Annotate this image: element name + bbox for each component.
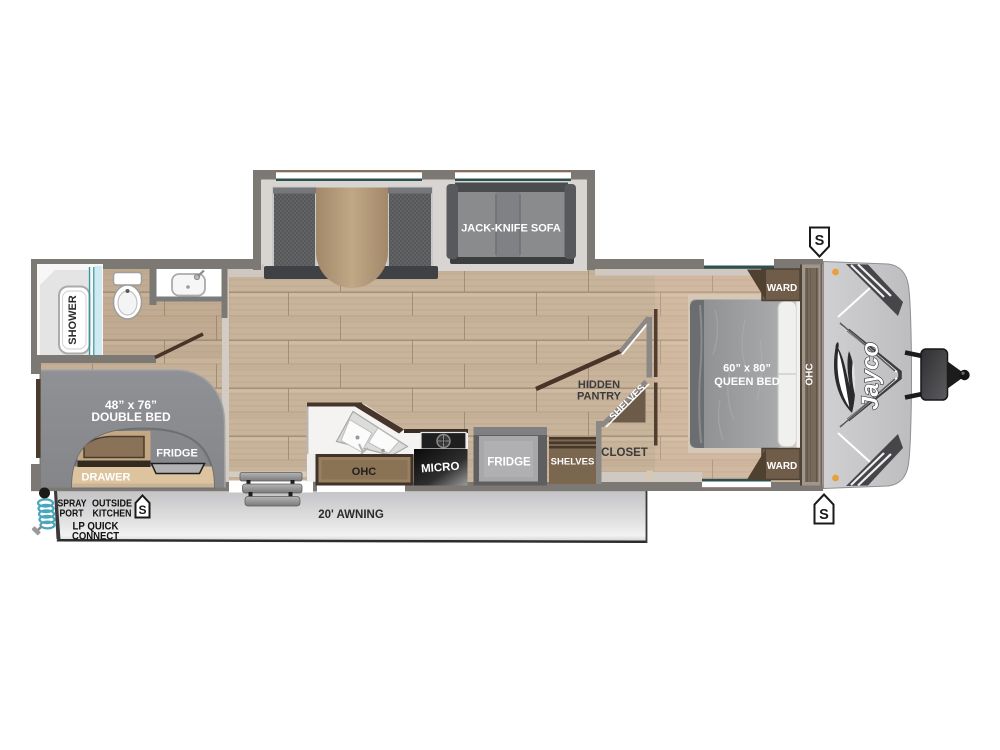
svg-text:60” x 80”: 60” x 80” xyxy=(723,363,771,375)
svg-text:20' AWNING: 20' AWNING xyxy=(318,509,384,521)
svg-text:HIDDEN: HIDDEN xyxy=(578,379,620,391)
svg-text:OHC: OHC xyxy=(805,363,816,385)
svg-text:WARD: WARD xyxy=(767,461,798,472)
svg-text:PORT: PORT xyxy=(60,508,84,520)
svg-text:KITCHEN: KITCHEN xyxy=(93,508,132,520)
svg-text:DRAWER: DRAWER xyxy=(82,472,131,484)
svg-text:FRIDGE: FRIDGE xyxy=(487,457,531,469)
svg-text:PANTRY: PANTRY xyxy=(577,391,622,403)
svg-text:SHOWER: SHOWER xyxy=(67,295,79,345)
svg-text:Jayco: Jayco xyxy=(857,342,884,410)
svg-text:CLOSET: CLOSET xyxy=(601,447,648,459)
svg-text:SHELVES: SHELVES xyxy=(551,457,595,468)
svg-text:S: S xyxy=(815,233,825,249)
svg-text:QUEEN BED: QUEEN BED xyxy=(714,376,779,388)
svg-text:FRIDGE: FRIDGE xyxy=(156,448,198,460)
svg-text:OHC: OHC xyxy=(352,466,377,478)
svg-text:S: S xyxy=(819,507,829,523)
svg-text:WARD: WARD xyxy=(767,283,798,294)
svg-text:CONNECT: CONNECT xyxy=(72,531,119,543)
svg-text:JACK-KNIFE SOFA: JACK-KNIFE SOFA xyxy=(461,223,561,235)
svg-text:DOUBLE BED: DOUBLE BED xyxy=(91,410,171,424)
svg-text:S: S xyxy=(138,503,146,517)
